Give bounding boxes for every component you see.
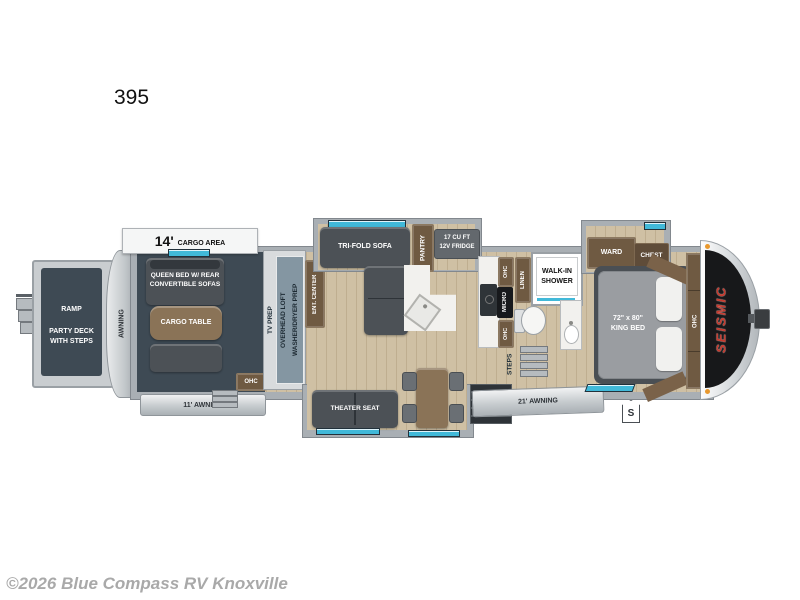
awning-21-label: 21' AWNING — [518, 397, 558, 405]
bedroom-steps-label: STEPS — [504, 346, 516, 382]
party-deck-label-1: PARTY DECK — [41, 328, 102, 336]
cooktop — [480, 284, 497, 316]
hitch-pin-icon — [754, 309, 770, 329]
cargo-table-label: CARGO TABLE — [150, 306, 222, 340]
kitchen-ohc-bottom: OHC — [498, 320, 514, 348]
cargo-table: CARGO TABLE — [150, 306, 222, 340]
linen-closet: LINEN — [515, 257, 531, 303]
pillow — [656, 327, 682, 371]
rear-awning-label: AWNING — [115, 261, 129, 387]
theater-window — [316, 428, 380, 435]
microwave-label: MICRO — [497, 287, 513, 318]
trifold-sofa-label: TRI-FOLD SOFA — [320, 227, 410, 268]
king-bed-label-1: 72" x 80" — [602, 315, 654, 323]
watermark: ©2026 Blue Compass RV Knoxville — [6, 574, 288, 594]
fridge-label-1: 17 CU FT — [435, 235, 479, 242]
garage-ohc: OHC — [236, 373, 266, 391]
wardrobe: WARD — [587, 237, 636, 269]
kitchen-ohc-top-label: OHC — [499, 258, 513, 286]
dinette-chair — [402, 404, 417, 423]
party-deck-label-2: WITH STEPS — [41, 338, 102, 346]
dinette-chair — [449, 372, 464, 391]
bedroom-window — [585, 384, 636, 392]
king-bed-label-2: KING BED — [602, 325, 654, 333]
queen-bed-label-1: QUEEN BED W/ REAR — [146, 272, 224, 279]
bedroom-slide-window — [644, 222, 666, 230]
pantry-label: PANTRY — [413, 225, 433, 271]
party-deck: RAMP PARTY DECK WITH STEPS — [41, 268, 102, 376]
overhead-loft-label: OVERHEAD LOFT — [278, 259, 289, 381]
dinette-table — [416, 368, 448, 428]
s-badge-label: S — [628, 408, 635, 419]
fridge: 17 CU FT 12V FRIDGE — [434, 229, 480, 259]
kitchen-ohc-bottom-label: OHC — [499, 321, 513, 347]
dinette-chair — [402, 372, 417, 391]
cargo-window — [168, 249, 210, 257]
s-badge: S — [622, 400, 640, 423]
bedroom-steps-icon — [520, 346, 548, 382]
sofa-chaise — [364, 266, 408, 335]
fridge-label-2: 12V FRIDGE — [435, 244, 479, 251]
tv-prep-label: TV PREP — [265, 259, 276, 381]
brand-logo: SEISMIC — [711, 258, 731, 380]
shower-label-1: WALK-IN — [533, 268, 581, 276]
queen-bed: QUEEN BED W/ REAR CONVERTIBLE SOFAS — [146, 258, 224, 305]
cargo-area-label: CARGO AREA — [178, 240, 226, 247]
king-bed: 72" x 80" KING BED — [598, 271, 688, 379]
dinette-window — [408, 430, 460, 437]
rear-sofa — [150, 344, 222, 372]
rear-entry-steps-icon — [212, 390, 238, 410]
pantry: PANTRY — [412, 224, 434, 272]
walk-in-shower: WALK-IN SHOWER — [531, 252, 583, 306]
microwave: MICRO — [497, 287, 513, 318]
floorplan-page: 395 RAMP PARTY DECK WITH STEPS AWNING 14… — [0, 0, 800, 600]
loft-wall: TV PREP OVERHEAD LOFT WASHER/DRYER PREP — [263, 250, 306, 390]
theater-seat-label: THEATER SEAT — [312, 390, 398, 428]
garage-ohc-label: OHC — [237, 374, 265, 390]
marker-light — [705, 389, 710, 394]
ramp-label: RAMP — [41, 306, 102, 314]
washer-dryer-label: WASHER/DRYER PREP — [290, 259, 301, 381]
kitchen-ohc-top: OHC — [498, 257, 514, 287]
shower-label-2: SHOWER — [533, 278, 581, 286]
awning-11: 11' AWNING — [140, 394, 266, 416]
bath-vanity — [560, 300, 582, 350]
queen-bed-label-2: CONVERTIBLE SOFAS — [146, 281, 224, 288]
trifold-sofa: TRI-FOLD SOFA — [320, 227, 410, 268]
theater-seat: THEATER SEAT — [312, 390, 398, 428]
toilet — [521, 306, 546, 335]
pillow — [656, 277, 682, 321]
dinette-chair — [449, 404, 464, 423]
page-title: 395 — [114, 86, 149, 110]
wardrobe-label: WARD — [588, 238, 635, 268]
cargo-length-label: 14' — [155, 233, 174, 249]
marker-light — [705, 244, 710, 249]
linen-label: LINEN — [516, 258, 530, 302]
